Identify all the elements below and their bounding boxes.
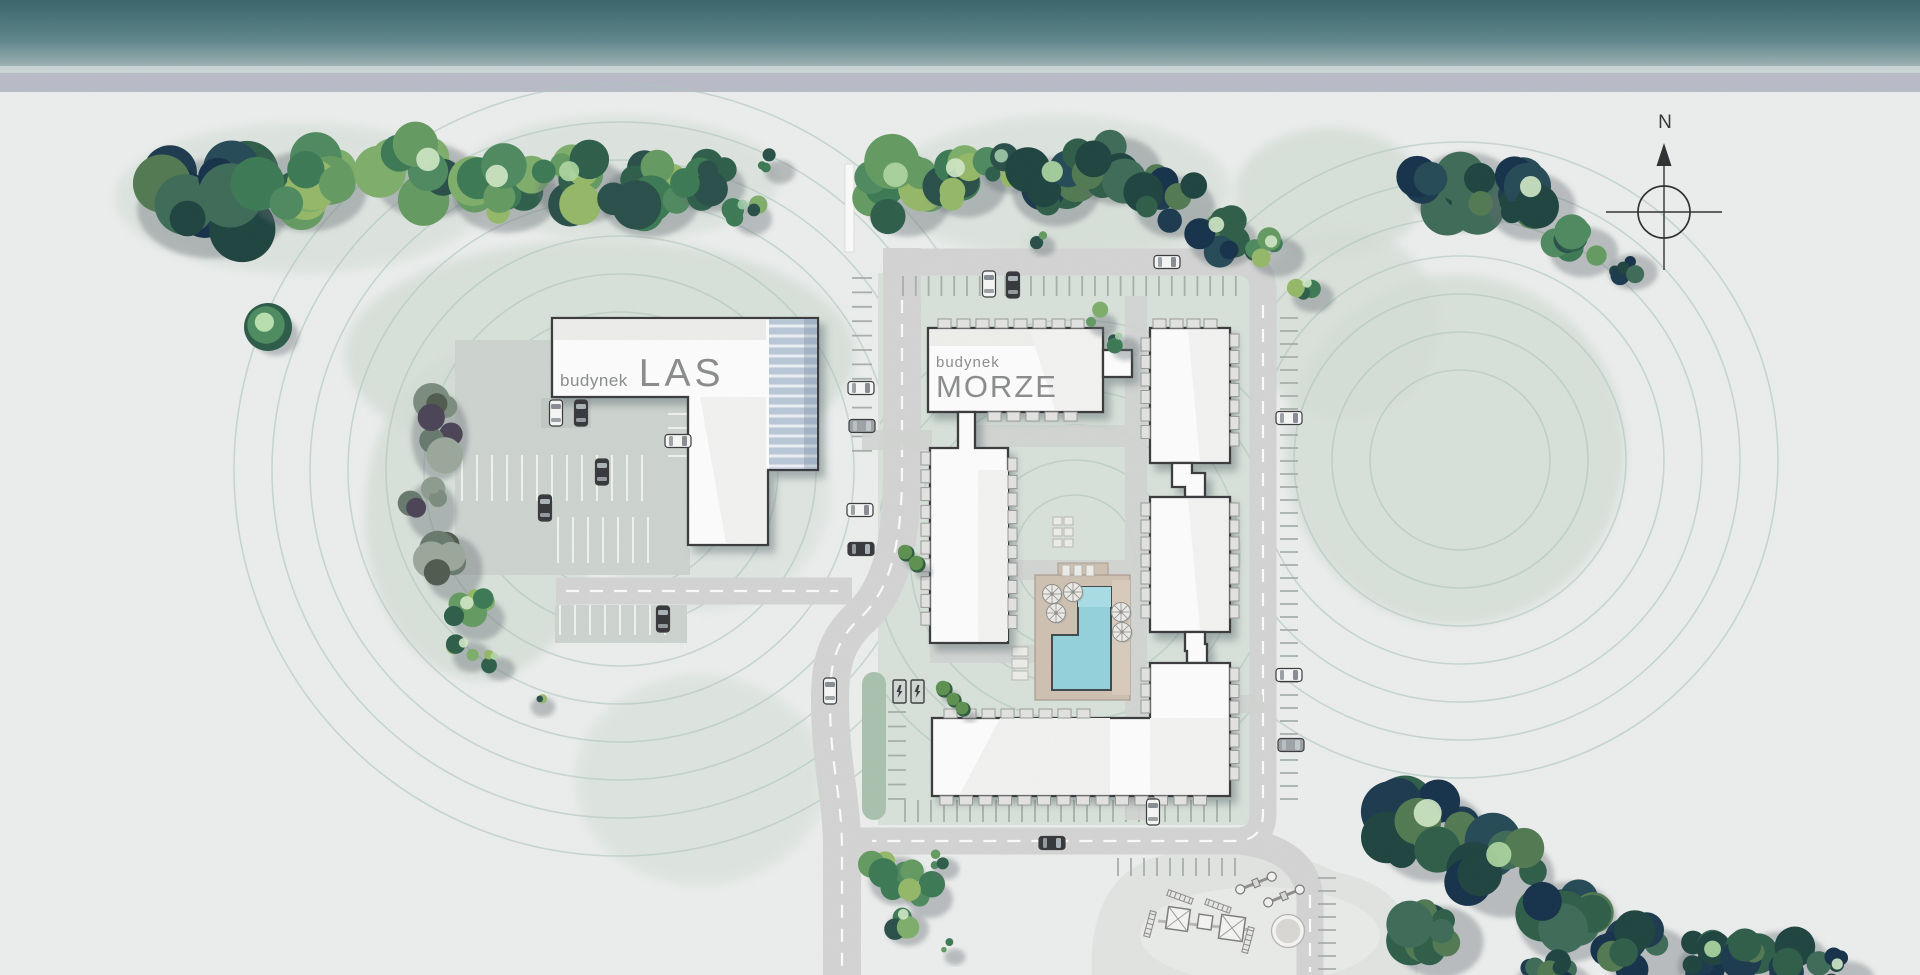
compass-north-label: N <box>1654 112 1676 134</box>
building-las-label[interactable]: budynek LAS <box>560 352 725 396</box>
building-morze-label[interactable]: budynek MORZE <box>936 355 1058 403</box>
site-plan-svg <box>0 0 1920 975</box>
site-plan-canvas: budynek LAS budynek MORZE N <box>0 0 1920 975</box>
paper-texture <box>0 0 1920 975</box>
las-label-prefix: budynek <box>560 371 628 391</box>
morze-label-name: MORZE <box>936 371 1058 404</box>
las-label-name: LAS <box>639 352 725 396</box>
